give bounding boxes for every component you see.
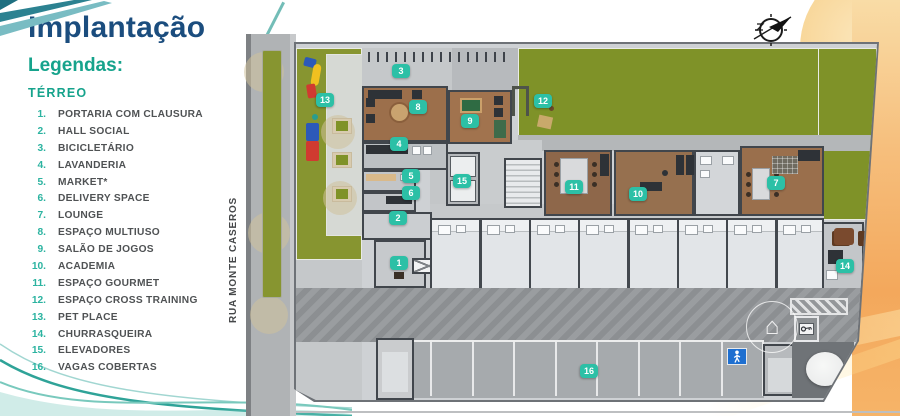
gym-equipment xyxy=(662,170,668,176)
hatched-zone xyxy=(790,298,848,315)
plan-marker-16: 16 xyxy=(580,364,598,378)
legend-item-label: ESPAÇO GOURMET xyxy=(58,278,159,289)
legend-item-label: HALL SOCIAL xyxy=(58,126,130,137)
legend-item-number: 14. xyxy=(28,329,46,340)
kitchen-counter xyxy=(798,150,820,161)
room-espaco-multiuso xyxy=(362,86,448,142)
legend-item: 14.CHURRASQUEIRA xyxy=(28,329,238,346)
plan-marker-7: 7 xyxy=(767,176,785,190)
bike-racks xyxy=(368,52,508,62)
bathroom-fixture xyxy=(752,225,762,233)
legend-item-label: DELIVERY SPACE xyxy=(58,193,150,204)
legend-item: 13.PET PLACE xyxy=(28,312,238,329)
bathroom-fixture xyxy=(734,225,747,235)
washer xyxy=(412,146,421,155)
legend-panel: Implantação Legendas: TÉRREO 1.PORTARIA … xyxy=(0,0,246,416)
legend-item: 4.LAVANDERIA xyxy=(28,160,238,177)
legend-item-label: VAGAS COBERTAS xyxy=(58,362,157,373)
unit-divider xyxy=(726,220,729,288)
fixture xyxy=(700,170,710,178)
legend-item: 12.ESPAÇO CROSS TRAINING xyxy=(28,295,238,312)
service-block-interior xyxy=(768,358,792,392)
plan-marker-10: 10 xyxy=(629,187,647,201)
legend-item-number: 12. xyxy=(28,295,46,306)
lounge-rug xyxy=(772,156,798,174)
cabinet xyxy=(412,90,422,99)
legend-item-number: 9. xyxy=(28,244,46,255)
bathroom-fixture xyxy=(703,225,713,233)
watermark-stamp: ⌂ xyxy=(746,301,798,353)
bathroom-fixture xyxy=(685,225,698,235)
plan-marker-11: 11 xyxy=(565,180,583,194)
floor-heading: TÉRREO xyxy=(28,86,87,100)
playground-tower xyxy=(306,123,319,141)
room-restrooms xyxy=(694,150,740,216)
bathroom-fixture xyxy=(438,225,451,235)
bathroom-fixture xyxy=(505,225,515,233)
shelf xyxy=(366,174,396,181)
unit-divider xyxy=(578,220,581,288)
playground-toy xyxy=(312,114,318,120)
planter xyxy=(332,152,352,168)
plan-marker-4: 4 xyxy=(390,137,408,151)
desk xyxy=(394,272,404,279)
plan-marker-14: 14 xyxy=(836,259,854,273)
chair xyxy=(366,114,375,123)
legend-item: 15.ELEVADORES xyxy=(28,345,238,362)
north-compass-icon xyxy=(750,5,794,49)
legend-item-label: MARKET* xyxy=(58,177,108,188)
chairs xyxy=(746,172,751,177)
fixture xyxy=(722,156,734,165)
plan-marker-13: 13 xyxy=(316,93,334,107)
brochure-page: Implantação Legendas: TÉRREO 1.PORTARIA … xyxy=(0,0,900,416)
legend-item-number: 3. xyxy=(28,143,46,154)
legend-list: 1.PORTARIA COM CLAUSURA2.HALL SOCIAL3.BI… xyxy=(28,109,238,379)
fixture xyxy=(700,156,712,165)
street-road xyxy=(246,34,296,416)
plan-marker-8: 8 xyxy=(409,100,427,114)
stall-line xyxy=(472,342,474,396)
bottom-rule xyxy=(290,411,900,413)
stall-line xyxy=(555,342,557,396)
unit-divider xyxy=(775,220,778,288)
stall-line xyxy=(638,342,640,396)
legend-item-label: ESPAÇO MULTIUSO xyxy=(58,227,160,238)
bathroom-fixture xyxy=(456,225,466,233)
legend-item: 3.BICICLETÁRIO xyxy=(28,143,238,160)
legend-item-label: LAVANDERIA xyxy=(58,160,126,171)
legend-item-label: ELEVADORES xyxy=(58,345,130,356)
legend-item-number: 10. xyxy=(28,261,46,272)
room-academia xyxy=(614,150,694,216)
plan-marker-1: 1 xyxy=(390,256,408,270)
legend-item: 5.MARKET* xyxy=(28,177,238,194)
legend-item: 9.SALÃO DE JOGOS xyxy=(28,244,238,261)
kitchen-counter xyxy=(600,154,609,176)
planter xyxy=(332,186,352,202)
chair xyxy=(366,98,375,107)
round-table xyxy=(391,104,408,121)
bathroom-fixture xyxy=(653,225,663,233)
plan-marker-12: 12 xyxy=(534,94,552,108)
bathroom-fixture xyxy=(801,225,811,233)
sofa xyxy=(494,120,506,138)
planter-shrub xyxy=(336,121,348,131)
legend-item: 16.VAGAS COBERTAS xyxy=(28,362,238,379)
legend-item-number: 6. xyxy=(28,193,46,204)
bathroom-fixture xyxy=(487,225,500,235)
legend-item-number: 13. xyxy=(28,312,46,323)
legend-item-label: PORTARIA COM CLAUSURA xyxy=(58,109,203,120)
legend-item-number: 8. xyxy=(28,227,46,238)
planter-shrub xyxy=(336,189,348,199)
water-tank xyxy=(806,352,844,386)
playground-tower xyxy=(306,141,319,161)
legend-heading: Legendas: xyxy=(28,55,123,77)
stall-line xyxy=(430,342,432,396)
unit-divider xyxy=(479,220,482,288)
unit-divider xyxy=(677,220,680,288)
chair xyxy=(494,96,503,105)
bbq-table xyxy=(834,228,854,245)
walking-person-icon xyxy=(731,350,743,363)
legend-item-number: 11. xyxy=(28,278,46,289)
plan-marker-15: 15 xyxy=(453,174,471,188)
stall-line xyxy=(721,342,723,396)
utility-interior xyxy=(382,352,408,392)
legend-item-label: ACADEMIA xyxy=(58,261,115,272)
treadmill xyxy=(686,155,694,175)
legend-item-label: LOUNGE xyxy=(58,210,103,221)
legend-item: 1.PORTARIA COM CLAUSURA xyxy=(28,109,238,126)
unit-divider xyxy=(529,220,532,288)
street-name-label: RUA MONTE CASEROS xyxy=(228,190,246,330)
legend-item-number: 4. xyxy=(28,160,46,171)
legend-item-label: BICICLETÁRIO xyxy=(58,143,134,154)
legend-item: 2.HALL SOCIAL xyxy=(28,126,238,143)
utility-building xyxy=(376,338,414,400)
legend-item-label: ESPAÇO CROSS TRAINING xyxy=(58,295,198,306)
key-icon xyxy=(799,323,814,335)
legend-item-number: 7. xyxy=(28,210,46,221)
room-salao-de-jogos xyxy=(448,90,512,144)
legend-item-label: SALÃO DE JOGOS xyxy=(58,244,154,255)
corner-slash-decor xyxy=(0,0,120,50)
legend-item-number: 5. xyxy=(28,177,46,188)
chairs xyxy=(554,162,559,167)
plan-marker-5: 5 xyxy=(402,169,420,183)
bathroom-fixture xyxy=(783,225,796,235)
legend-item-number: 16. xyxy=(28,362,46,373)
legend-item: 6.DELIVERY SPACE xyxy=(28,193,238,210)
bathroom-fixture xyxy=(604,225,614,233)
pedestrian-sign xyxy=(727,348,747,365)
legend-item-number: 2. xyxy=(28,126,46,137)
stall-line xyxy=(513,342,515,396)
tree-canopy xyxy=(250,296,288,334)
legend-item-label: PET PLACE xyxy=(58,312,118,323)
planted-verge xyxy=(262,50,282,298)
plan-marker-3: 3 xyxy=(392,64,410,78)
unit-divider xyxy=(627,220,630,288)
legend-item: 11.ESPAÇO GOURMET xyxy=(28,278,238,295)
bathroom-fixture xyxy=(537,225,550,235)
plan-marker-6: 6 xyxy=(402,186,420,200)
treadmill xyxy=(676,155,684,175)
bathroom-fixture xyxy=(635,225,648,235)
planter xyxy=(332,118,352,134)
legend-item: 10.ACADEMIA xyxy=(28,261,238,278)
bathroom-fixture xyxy=(555,225,565,233)
legend-item: 7.LOUNGE xyxy=(28,210,238,227)
stairs xyxy=(504,158,542,208)
house-icon: ⌂ xyxy=(765,313,780,341)
legend-item-label: CHURRASQUEIRA xyxy=(58,329,152,340)
legend-item-number: 1. xyxy=(28,109,46,120)
stall-line xyxy=(679,342,681,396)
chair xyxy=(494,108,503,117)
pool-table xyxy=(460,98,482,113)
plan-marker-9: 9 xyxy=(461,114,479,128)
plan-marker-2: 2 xyxy=(389,211,407,225)
cross-training-rig xyxy=(512,86,529,116)
training-mat xyxy=(537,115,553,130)
legend-item-number: 15. xyxy=(28,345,46,356)
planter-shrub xyxy=(336,155,348,165)
washer xyxy=(423,146,432,155)
legend-item: 8.ESPAÇO MULTIUSO xyxy=(28,227,238,244)
bathroom-fixture xyxy=(586,225,599,235)
